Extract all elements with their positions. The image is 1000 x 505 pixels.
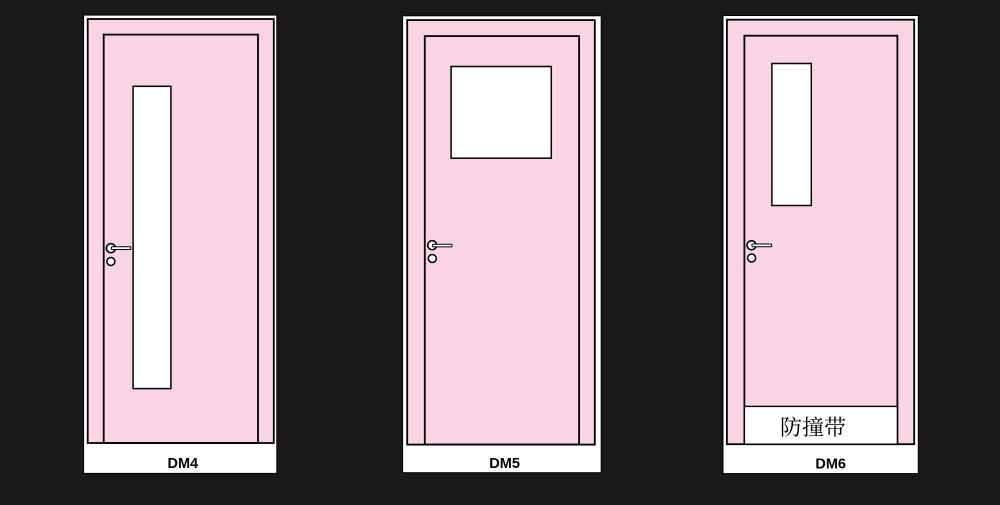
svg-text:DM4: DM4 — [167, 456, 198, 472]
svg-text:DM5: DM5 — [489, 456, 520, 472]
svg-text:DM6: DM6 — [815, 457, 846, 473]
